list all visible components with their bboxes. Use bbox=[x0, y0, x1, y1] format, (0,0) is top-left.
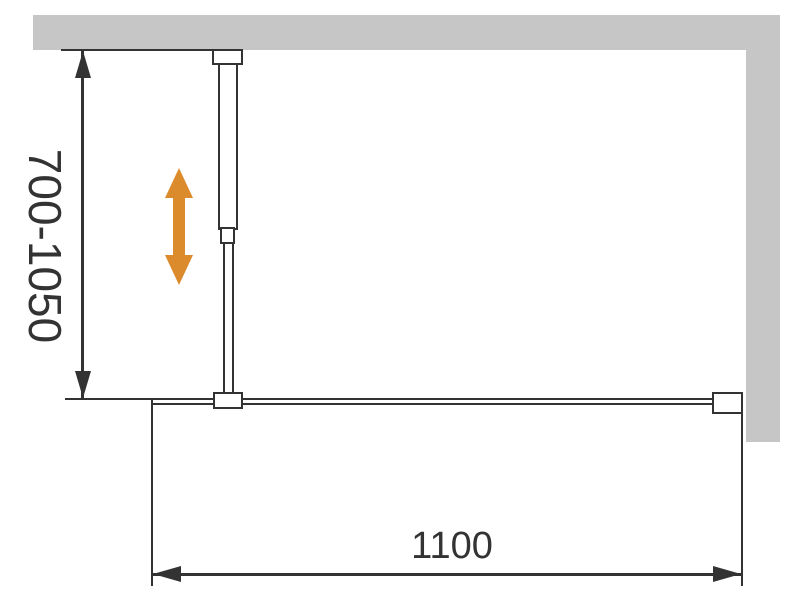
horizontal-dimension-line bbox=[153, 573, 741, 576]
adjust-arrow-up-head bbox=[165, 168, 193, 198]
glass-panel-top-edge bbox=[65, 398, 743, 400]
adjust-arrow-down-head bbox=[165, 255, 193, 285]
horizontal-dimension-left-extension bbox=[151, 400, 153, 586]
support-rod-glass-bracket bbox=[213, 392, 243, 409]
support-rod-outer-tube bbox=[218, 62, 238, 230]
horizontal-dimension-right-extension bbox=[741, 414, 743, 586]
support-rod-collar bbox=[220, 227, 235, 244]
installation-diagram: 700-1050 1100 bbox=[0, 0, 800, 599]
horizontal-dimension-label: 1100 bbox=[372, 527, 532, 565]
support-rod-inner-tube bbox=[223, 241, 234, 396]
arrow-down-icon bbox=[75, 371, 91, 398]
arrow-right-icon bbox=[713, 566, 741, 582]
arrow-up-icon bbox=[75, 51, 91, 78]
ceiling-wall bbox=[33, 15, 780, 50]
side-wall bbox=[746, 50, 780, 442]
adjust-arrow-shaft bbox=[173, 196, 185, 257]
arrow-left-icon bbox=[153, 566, 181, 582]
vertical-dimension-label: 700-1050 bbox=[22, 136, 68, 356]
vertical-dimension-line bbox=[81, 51, 84, 398]
glass-wall-bracket bbox=[712, 392, 743, 414]
support-rod-ceiling-bracket bbox=[212, 49, 243, 65]
